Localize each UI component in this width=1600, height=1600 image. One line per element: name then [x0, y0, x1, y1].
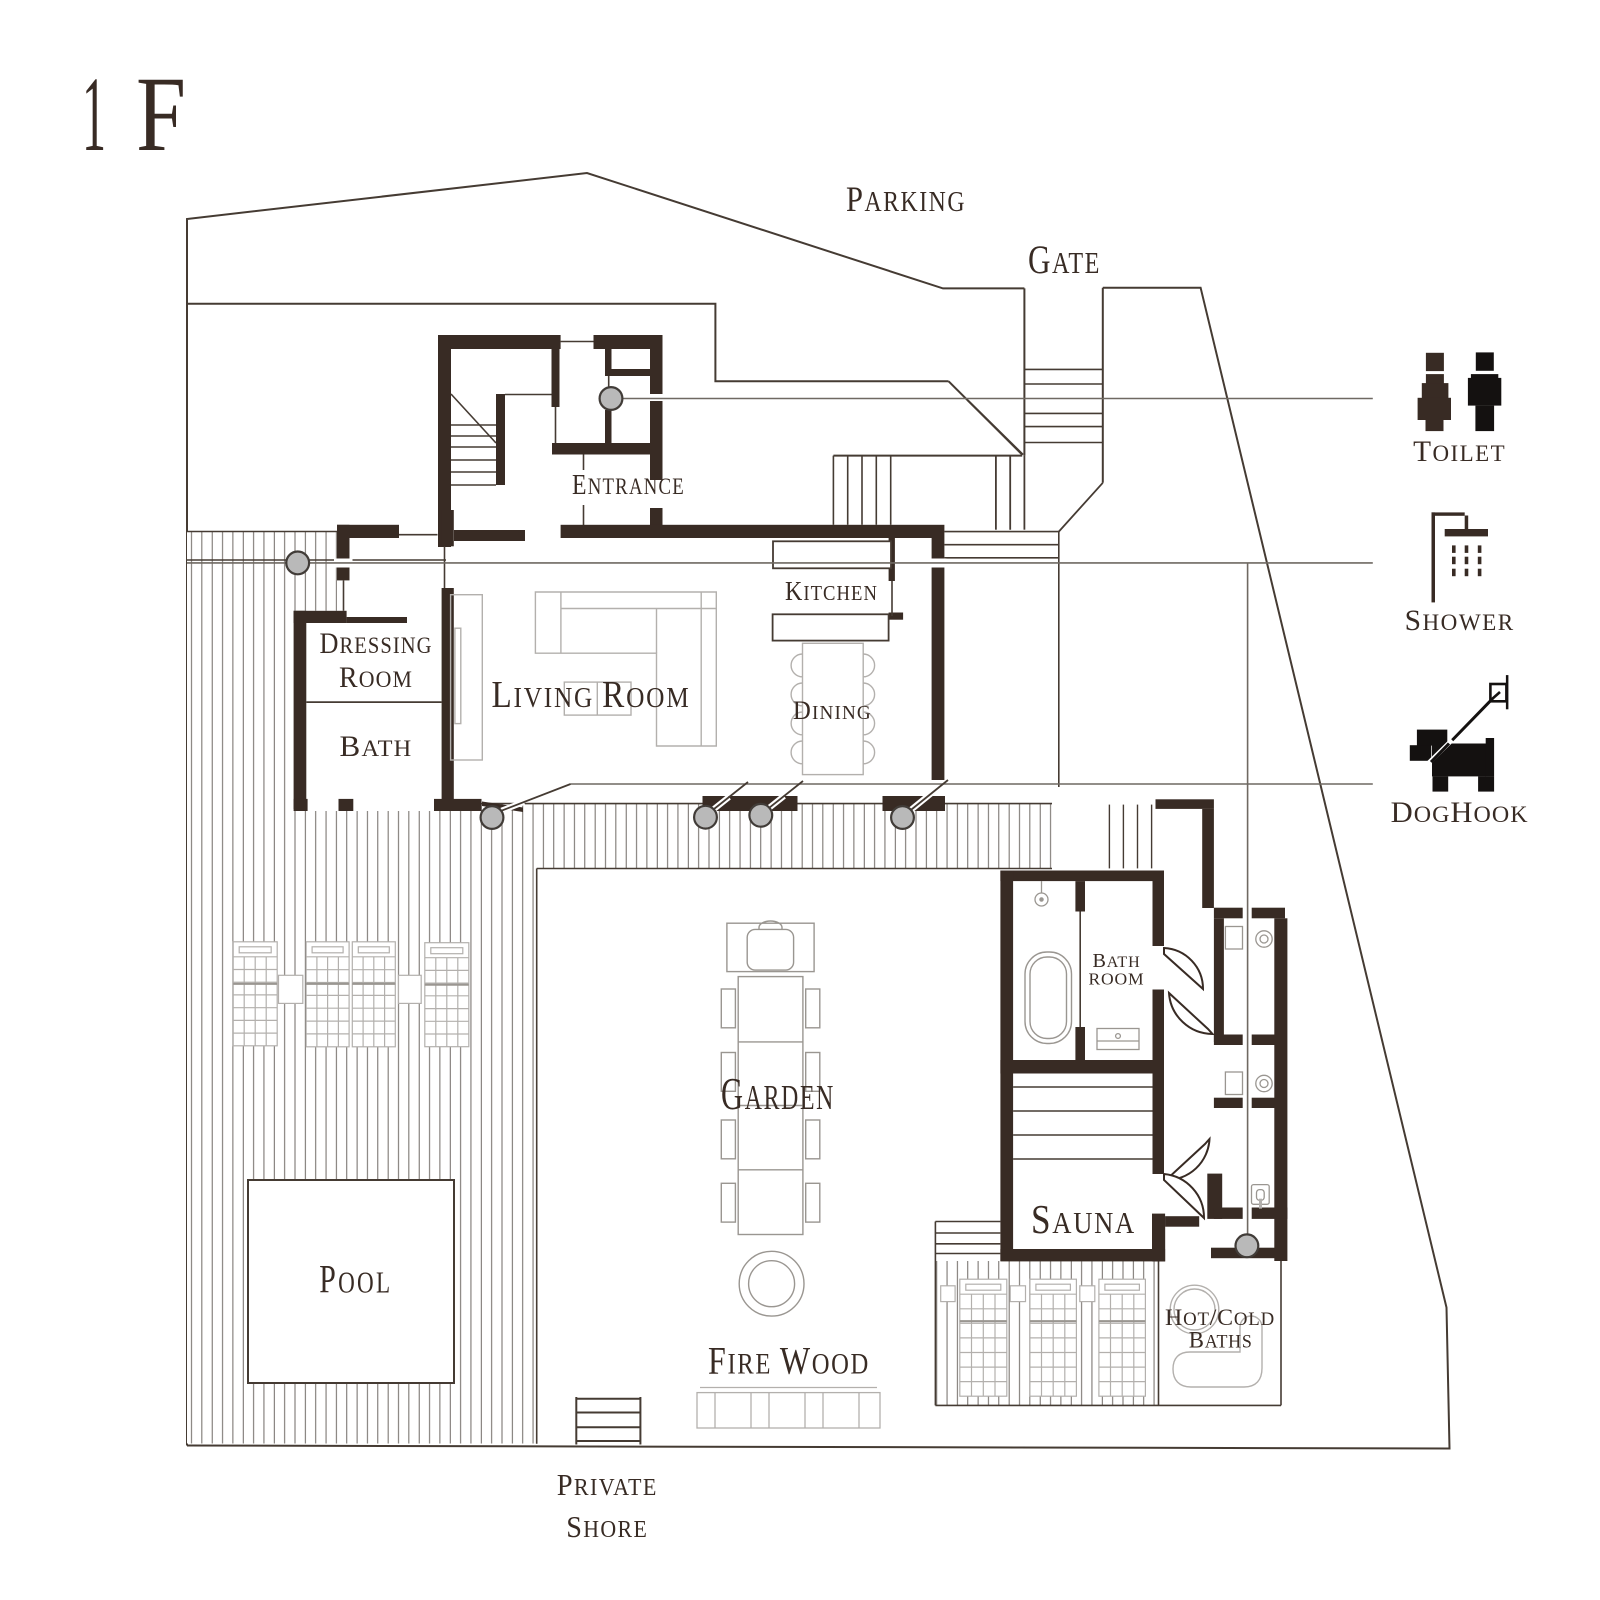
svg-text:ROOM: ROOM [1089, 970, 1145, 989]
svg-text:1: 1 [82, 56, 106, 174]
svg-text:F: F [136, 56, 186, 174]
svg-text:KITCHEN: KITCHEN [785, 576, 878, 606]
svg-text:ENTRANCE: ENTRANCE [572, 469, 685, 501]
